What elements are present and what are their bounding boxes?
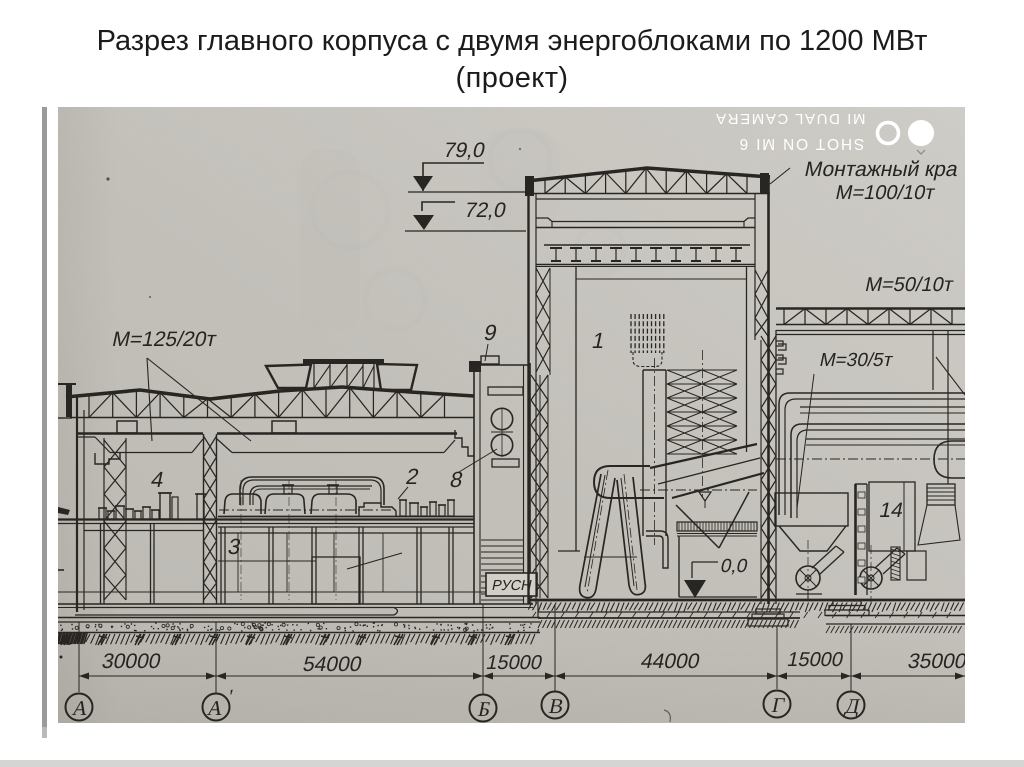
svg-text:М=125/20т: М=125/20т [110, 328, 219, 351]
svg-text:РУСН: РУСН [490, 578, 533, 594]
svg-text:0,0: 0,0 [719, 556, 750, 577]
svg-text:15000: 15000 [785, 649, 845, 671]
svg-text:М=50/10т: М=50/10т [863, 274, 955, 296]
svg-text:М=100/10т: М=100/10т [834, 182, 937, 204]
svg-text:MI DUAL CAMERA: MI DUAL CAMERA [714, 110, 865, 127]
svg-text:35000: 35000 [906, 650, 969, 673]
svg-text:SHOT ON MI 6: SHOT ON MI 6 [738, 135, 864, 152]
svg-text:79,0: 79,0 [442, 139, 488, 162]
svg-text:54000: 54000 [301, 653, 364, 676]
svg-text:15000: 15000 [484, 652, 544, 674]
svg-text:Монтажный кра: Монтажный кра [803, 158, 961, 181]
svg-text:72,0: 72,0 [463, 199, 509, 222]
svg-text:М=30/5т: М=30/5т [818, 350, 895, 371]
svg-text:30000: 30000 [100, 650, 163, 673]
svg-text:44000: 44000 [639, 650, 702, 673]
